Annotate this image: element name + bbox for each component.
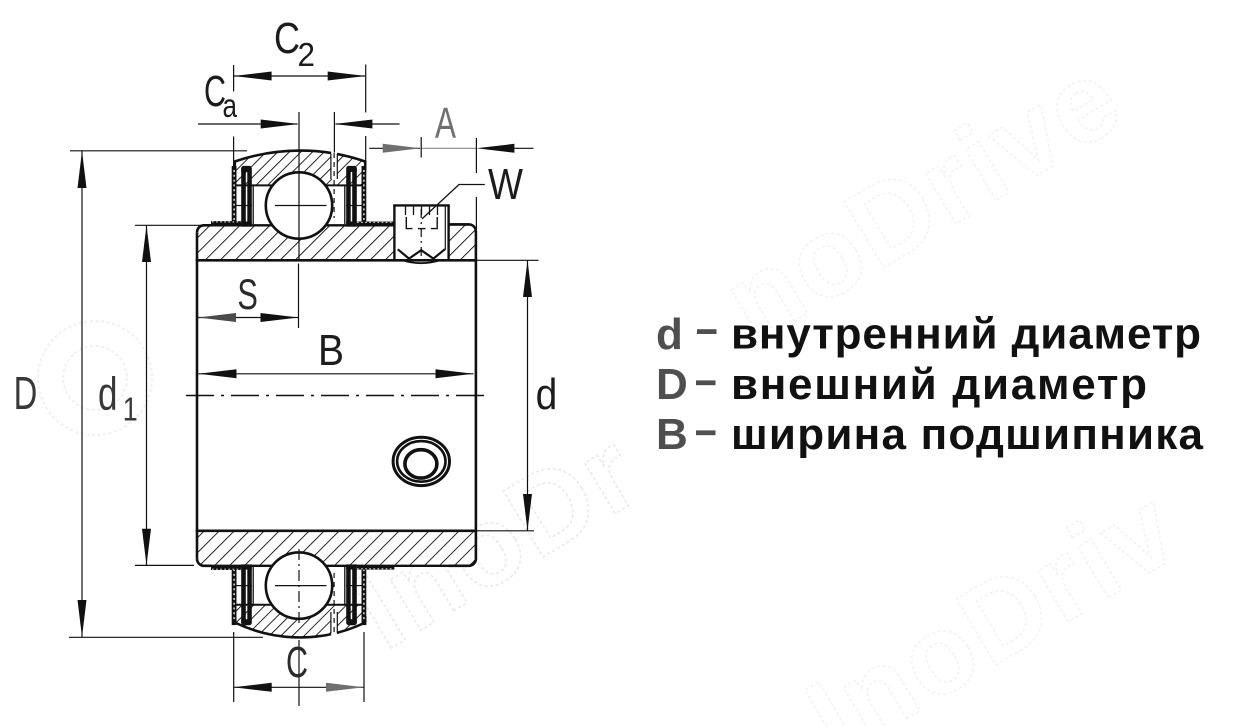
svg-text:внутренний диаметр: внутренний диаметр bbox=[731, 310, 1201, 359]
svg-text:d: d bbox=[536, 370, 558, 419]
svg-text:D: D bbox=[656, 360, 688, 409]
svg-text:d: d bbox=[98, 368, 118, 420]
svg-text:ширина подшипника: ширина подшипника bbox=[731, 410, 1204, 459]
svg-text:1: 1 bbox=[123, 391, 138, 428]
svg-text:d: d bbox=[656, 310, 683, 359]
svg-text:C: C bbox=[286, 638, 308, 687]
svg-text:внешний диаметр: внешний диаметр bbox=[731, 360, 1147, 409]
svg-text:a: a bbox=[223, 87, 238, 124]
svg-text:A: A bbox=[435, 99, 456, 148]
svg-text:B: B bbox=[318, 326, 344, 375]
svg-text:D: D bbox=[14, 367, 38, 419]
svg-text:2: 2 bbox=[298, 36, 316, 73]
svg-text:S: S bbox=[237, 271, 258, 319]
svg-text:W: W bbox=[488, 160, 523, 209]
svg-text:C: C bbox=[274, 14, 300, 63]
svg-text:B: B bbox=[656, 410, 688, 459]
